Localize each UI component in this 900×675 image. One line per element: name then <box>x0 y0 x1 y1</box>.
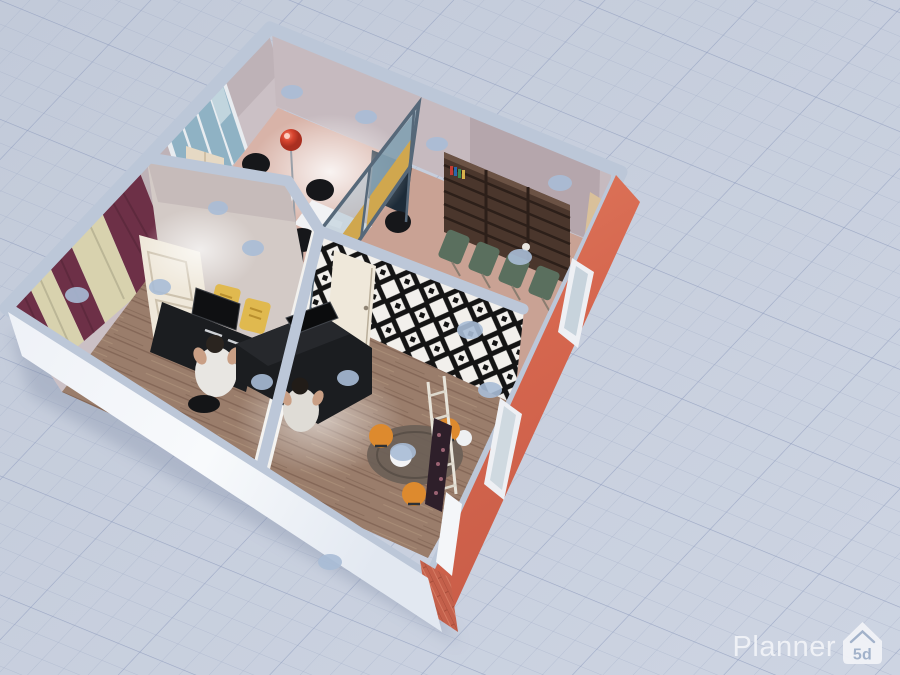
ceiling-light[interactable] <box>318 554 342 570</box>
bottle <box>436 462 440 466</box>
book <box>462 170 465 179</box>
bottle <box>437 433 441 437</box>
ceiling-light[interactable] <box>337 370 359 386</box>
book <box>454 167 457 176</box>
lamp-shade <box>280 129 302 151</box>
bottle <box>441 448 445 452</box>
ceiling-light[interactable] <box>251 374 273 390</box>
orange-stool[interactable] <box>369 424 393 448</box>
bottle <box>434 491 438 495</box>
ceiling-light[interactable] <box>208 201 228 215</box>
ceiling-light[interactable] <box>548 175 572 191</box>
ceiling-light[interactable] <box>478 382 502 398</box>
orange-stool[interactable] <box>402 482 426 506</box>
watermark-logo-text: 5d <box>853 647 872 664</box>
watermark-brand-text: Planner <box>733 631 836 663</box>
person-head <box>206 335 224 353</box>
office-chair[interactable] <box>306 179 334 201</box>
door-handle <box>364 306 369 311</box>
render-viewport[interactable]: Planner 5d <box>0 0 900 675</box>
lamp-highlight <box>284 133 290 139</box>
person-head <box>292 378 309 395</box>
planner5d-app-window: Planner 5d <box>0 0 900 675</box>
ceiling-light[interactable] <box>390 443 416 461</box>
book <box>450 166 453 175</box>
ceiling-light[interactable] <box>355 110 377 124</box>
ceiling-light[interactable] <box>149 279 171 295</box>
ceiling-light[interactable] <box>281 85 303 99</box>
ceiling-light[interactable] <box>426 137 448 151</box>
ceiling-light[interactable] <box>65 287 89 303</box>
bottle <box>439 477 443 481</box>
ceiling-light[interactable] <box>457 321 483 339</box>
person-chair <box>188 395 220 413</box>
ceiling-light[interactable] <box>508 249 532 265</box>
ceiling-light[interactable] <box>242 240 264 256</box>
book <box>458 169 461 178</box>
